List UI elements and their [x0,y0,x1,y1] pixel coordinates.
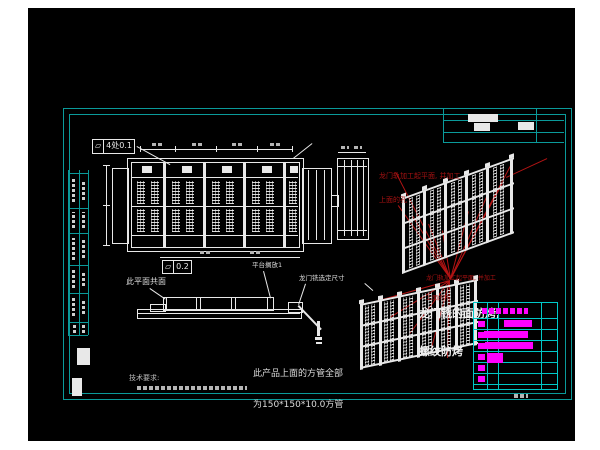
square-tube-note: 此产品上面的方管全部 为150*150*10.0方管 [253,348,343,431]
cad-screenshot-page: ▱ 4处0.1 ▱ 0.2 此平面共面 平台搁放1 龙门铣选定尺寸 龙门轨加工起… [0,0,600,450]
flatness-icon: ▱ [93,140,104,153]
platform-label: 平台搁放1 [252,262,282,269]
red-note-top-line1: 龙门轨加工起平面, 并加工 [379,172,460,180]
flatness-fcf-2: ▱ 0.2 [162,260,192,274]
flatness-fcf-1: ▱ 4处0.1 [92,139,135,154]
red-note-top: 龙门轨加工起平面, 并加工 上面的孔 [379,156,460,220]
red-note-top-line2: 上面的孔 [379,196,460,204]
square-tube-note-line1: 此产品上面的方管全部 [253,369,343,379]
coplanar-label: 此平面共面 [126,277,166,286]
bom-table [473,302,558,390]
fcf2-value: 0.2 [174,261,191,273]
tech-req-title: 技术要求: [129,374,159,382]
fcf1-value: 4处0.1 [104,140,134,153]
flatness-icon: ▱ [163,261,174,273]
square-tube-note-line2: 为150*150*10.0方管 [253,400,343,410]
red-note-bottom-line1: 龙门轨加工起平面, 并加工 [426,276,496,283]
mill-dim-label: 龙门铣选定尺寸 [299,275,345,282]
